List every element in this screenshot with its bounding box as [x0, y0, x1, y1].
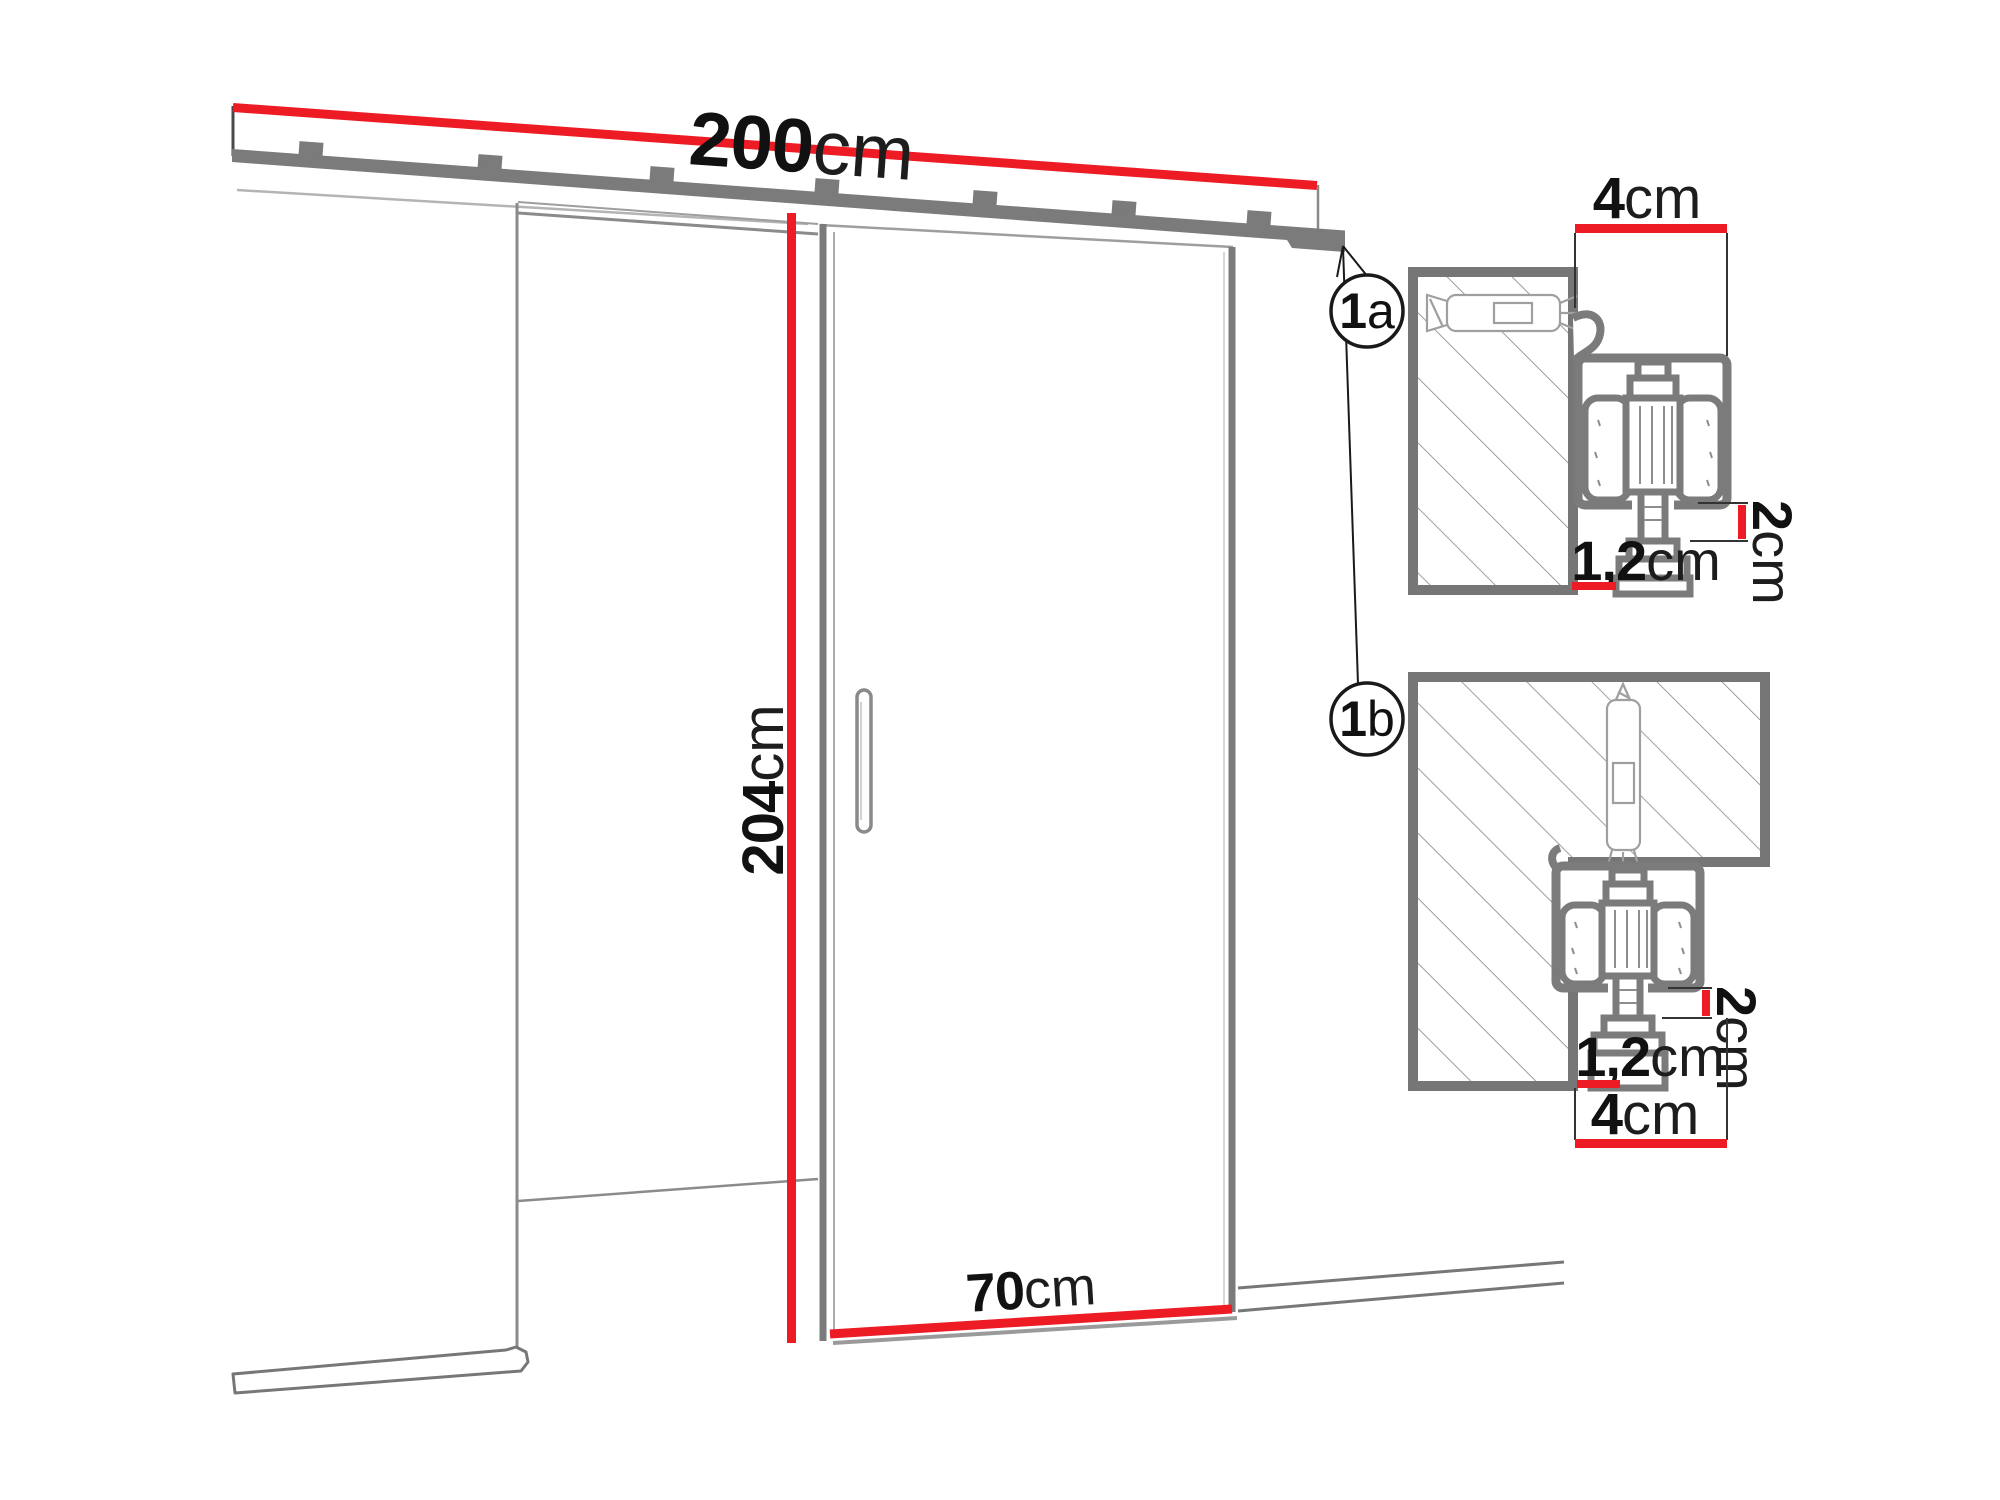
door-height-dimension: 204cm — [731, 213, 796, 1343]
right-baseboard — [1238, 1262, 1564, 1311]
detail-1b-dimensions: 2cm 1,2cm 4cm — [1575, 986, 1768, 1148]
diagram-svg: 200cm 70cm 204cm — [0, 0, 2000, 1500]
back-room-floor-line — [518, 1179, 818, 1201]
svg-text:1b: 1b — [1339, 691, 1395, 747]
balloon-1b: 1b — [1331, 683, 1403, 755]
detail-1b-wall-clearance-label: 1,2cm — [1575, 1025, 1725, 1088]
door-height-label: 204cm — [731, 704, 796, 875]
door-width-label: 70cm — [964, 1256, 1097, 1324]
balloon-1a: 1a — [1331, 275, 1403, 347]
detail-1b-ceiling-mount: 2cm 1,2cm 4cm — [1413, 677, 1768, 1148]
sliding-door-panel: 70cm — [820, 224, 1237, 1343]
detail-1a-wall-mount: 4cm 2cm 1,2cm — [1413, 166, 1804, 605]
left-baseboard — [233, 1347, 528, 1393]
door-handle — [857, 690, 871, 832]
sliding-door-dimension-diagram: 200cm 70cm 204cm — [0, 0, 2000, 1500]
door-face — [820, 224, 1233, 1337]
detail-1b-track-width-label: 4cm — [1591, 1082, 1700, 1147]
detail-1a-track-width-label: 4cm — [1593, 166, 1702, 231]
svg-text:1a: 1a — [1339, 283, 1395, 339]
rail-width-label: 200cm — [687, 96, 918, 197]
detail-1a-screw-icon — [1427, 295, 1578, 331]
doorway-top-edge-outer — [518, 202, 818, 224]
detail-1a-drop-gap-label: 2cm — [1741, 500, 1804, 605]
